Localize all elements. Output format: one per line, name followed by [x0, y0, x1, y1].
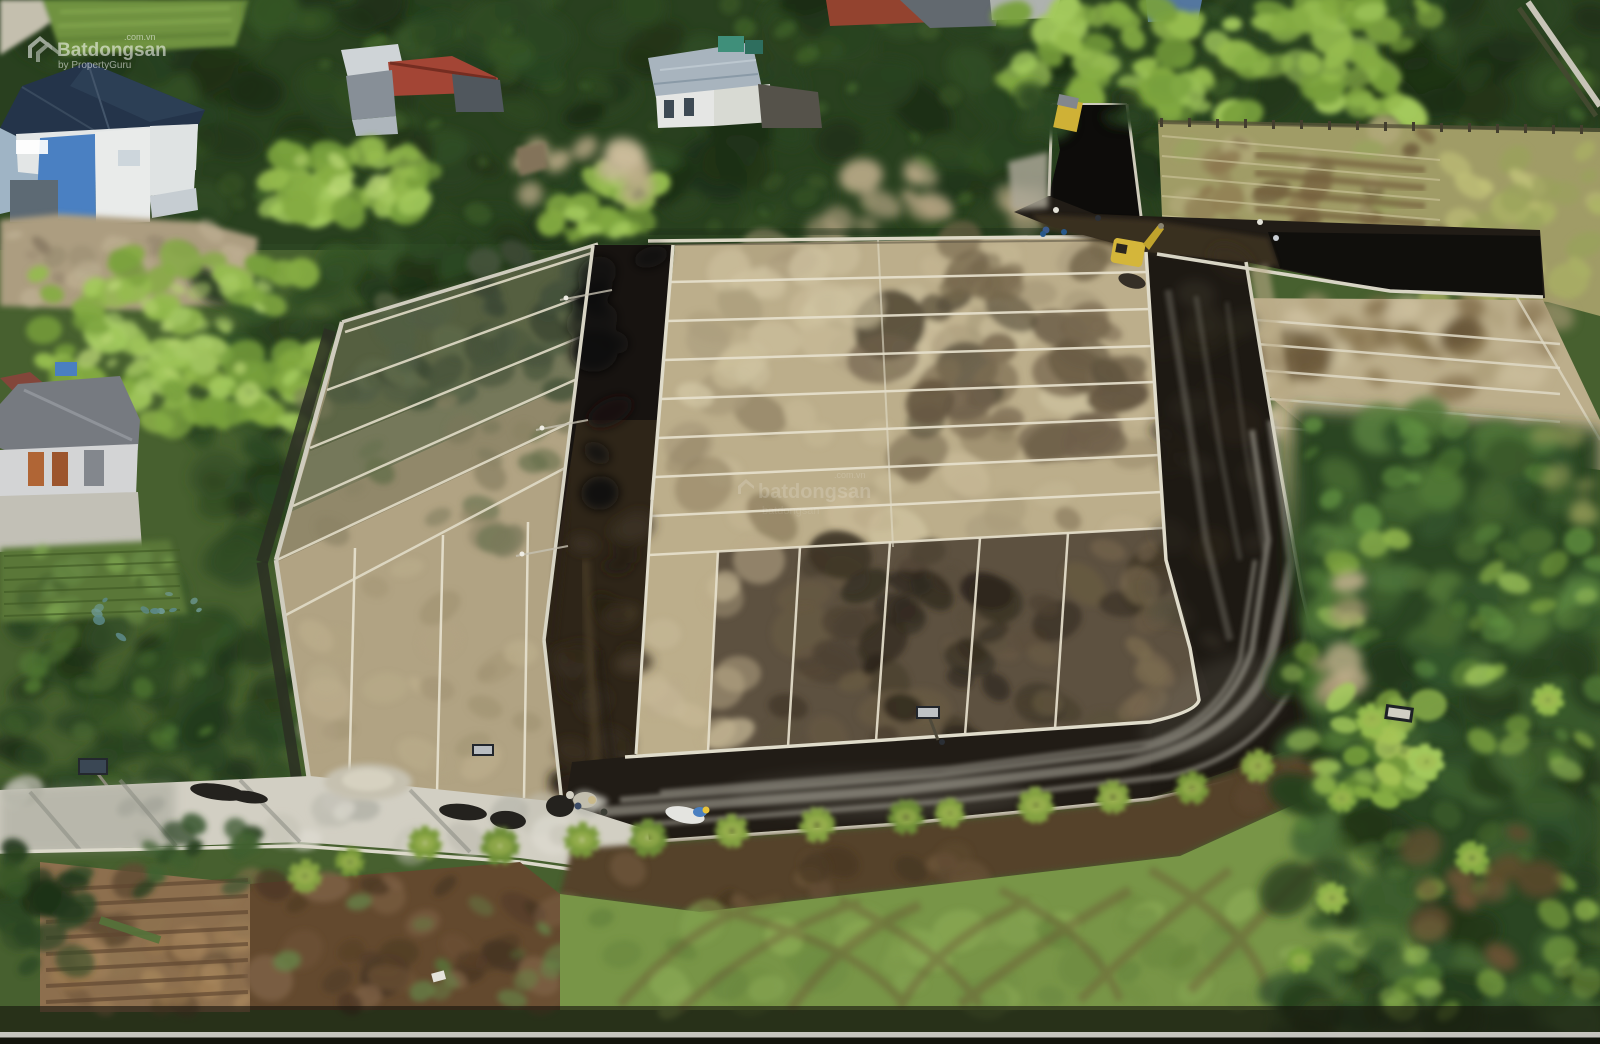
svg-text:Batdongsan: Batdongsan	[57, 40, 167, 61]
svg-text:.com.vn: .com.vn	[834, 470, 866, 480]
svg-text:batdongsan: batdongsan	[762, 505, 820, 517]
svg-text:by PropertyGuru: by PropertyGuru	[58, 60, 131, 71]
svg-text:batdongsan: batdongsan	[758, 481, 871, 503]
svg-text:.com.vn: .com.vn	[124, 32, 156, 42]
